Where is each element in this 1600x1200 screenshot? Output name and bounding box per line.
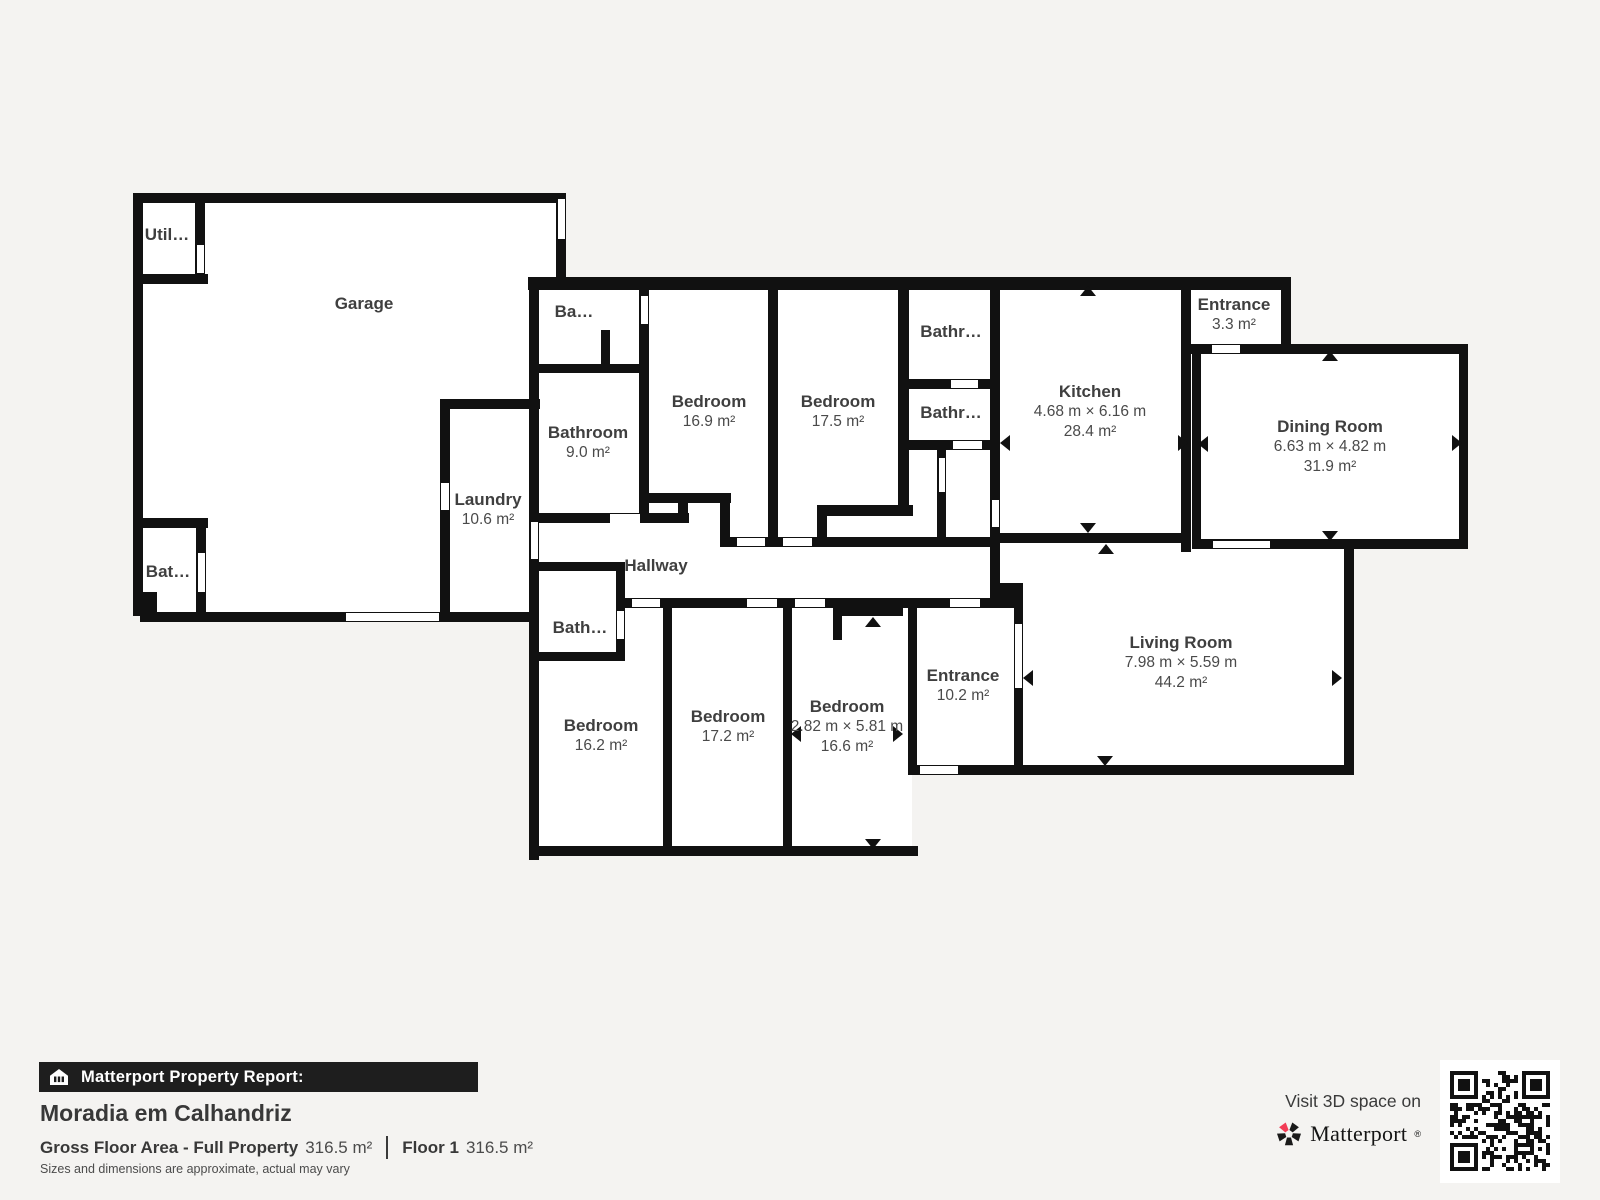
brand-registered-mark: ® [1414,1129,1421,1139]
disclaimer-text: Sizes and dimensions are approximate, ac… [40,1162,350,1176]
room-label: Bedroom2.82 m × 5.81 m16.6 m² [791,697,903,757]
room-label: Entrance3.3 m² [1198,295,1271,335]
matterport-logo: Matterport® [1235,1121,1421,1147]
room-label: Bathr… [920,322,981,342]
floor1-label: Floor 1 [402,1138,459,1158]
report-header-bar: Matterport Property Report: [39,1062,478,1092]
room-label: Bath… [553,618,608,638]
floor-area-stats: Gross Floor Area - Full Property 316.5 m… [40,1136,533,1159]
report-bar-label: Matterport Property Report: [81,1068,304,1087]
room-label: Dining Room6.63 m × 4.82 m31.9 m² [1274,417,1386,477]
room-label: Bat… [146,562,190,582]
matterport-wordmark: Matterport [1310,1121,1407,1147]
stats-divider [386,1136,388,1159]
room-label: Laundry10.6 m² [454,490,521,530]
room-labels: Util…GarageBa…Bathroom9.0 m²Bedroom16.9 … [0,0,1600,1200]
room-label: Bathroom9.0 m² [548,423,628,463]
room-label: Living Room7.98 m × 5.59 m44.2 m² [1125,633,1237,693]
property-name: Moradia em Calhandriz [40,1100,292,1127]
room-label: Util… [145,225,189,245]
house-icon [50,1069,68,1085]
room-label: Bedroom16.2 m² [564,716,639,756]
visit-3d-block: Visit 3D space on Matterport® [1235,1091,1421,1147]
visit-3d-text: Visit 3D space on [1235,1091,1421,1112]
room-label: Ba… [555,302,594,322]
room-label: Kitchen4.68 m × 6.16 m28.4 m² [1034,382,1146,442]
qr-code [1440,1060,1560,1183]
room-label: Bedroom17.5 m² [801,392,876,432]
room-label: Entrance10.2 m² [927,666,1000,706]
property-report-page: Util…GarageBa…Bathroom9.0 m²Bedroom16.9 … [0,0,1600,1200]
room-label: Hallway [624,556,687,576]
gross-floor-area-value: 316.5 m² [305,1138,372,1158]
room-label: Bedroom17.2 m² [691,707,766,747]
room-label: Bathr… [920,403,981,423]
matterport-pinwheel-icon [1275,1121,1303,1147]
gross-floor-area-label: Gross Floor Area - Full Property [40,1138,298,1158]
room-label: Garage [335,294,394,314]
room-label: Bedroom16.9 m² [672,392,747,432]
floor1-value: 316.5 m² [466,1138,533,1158]
